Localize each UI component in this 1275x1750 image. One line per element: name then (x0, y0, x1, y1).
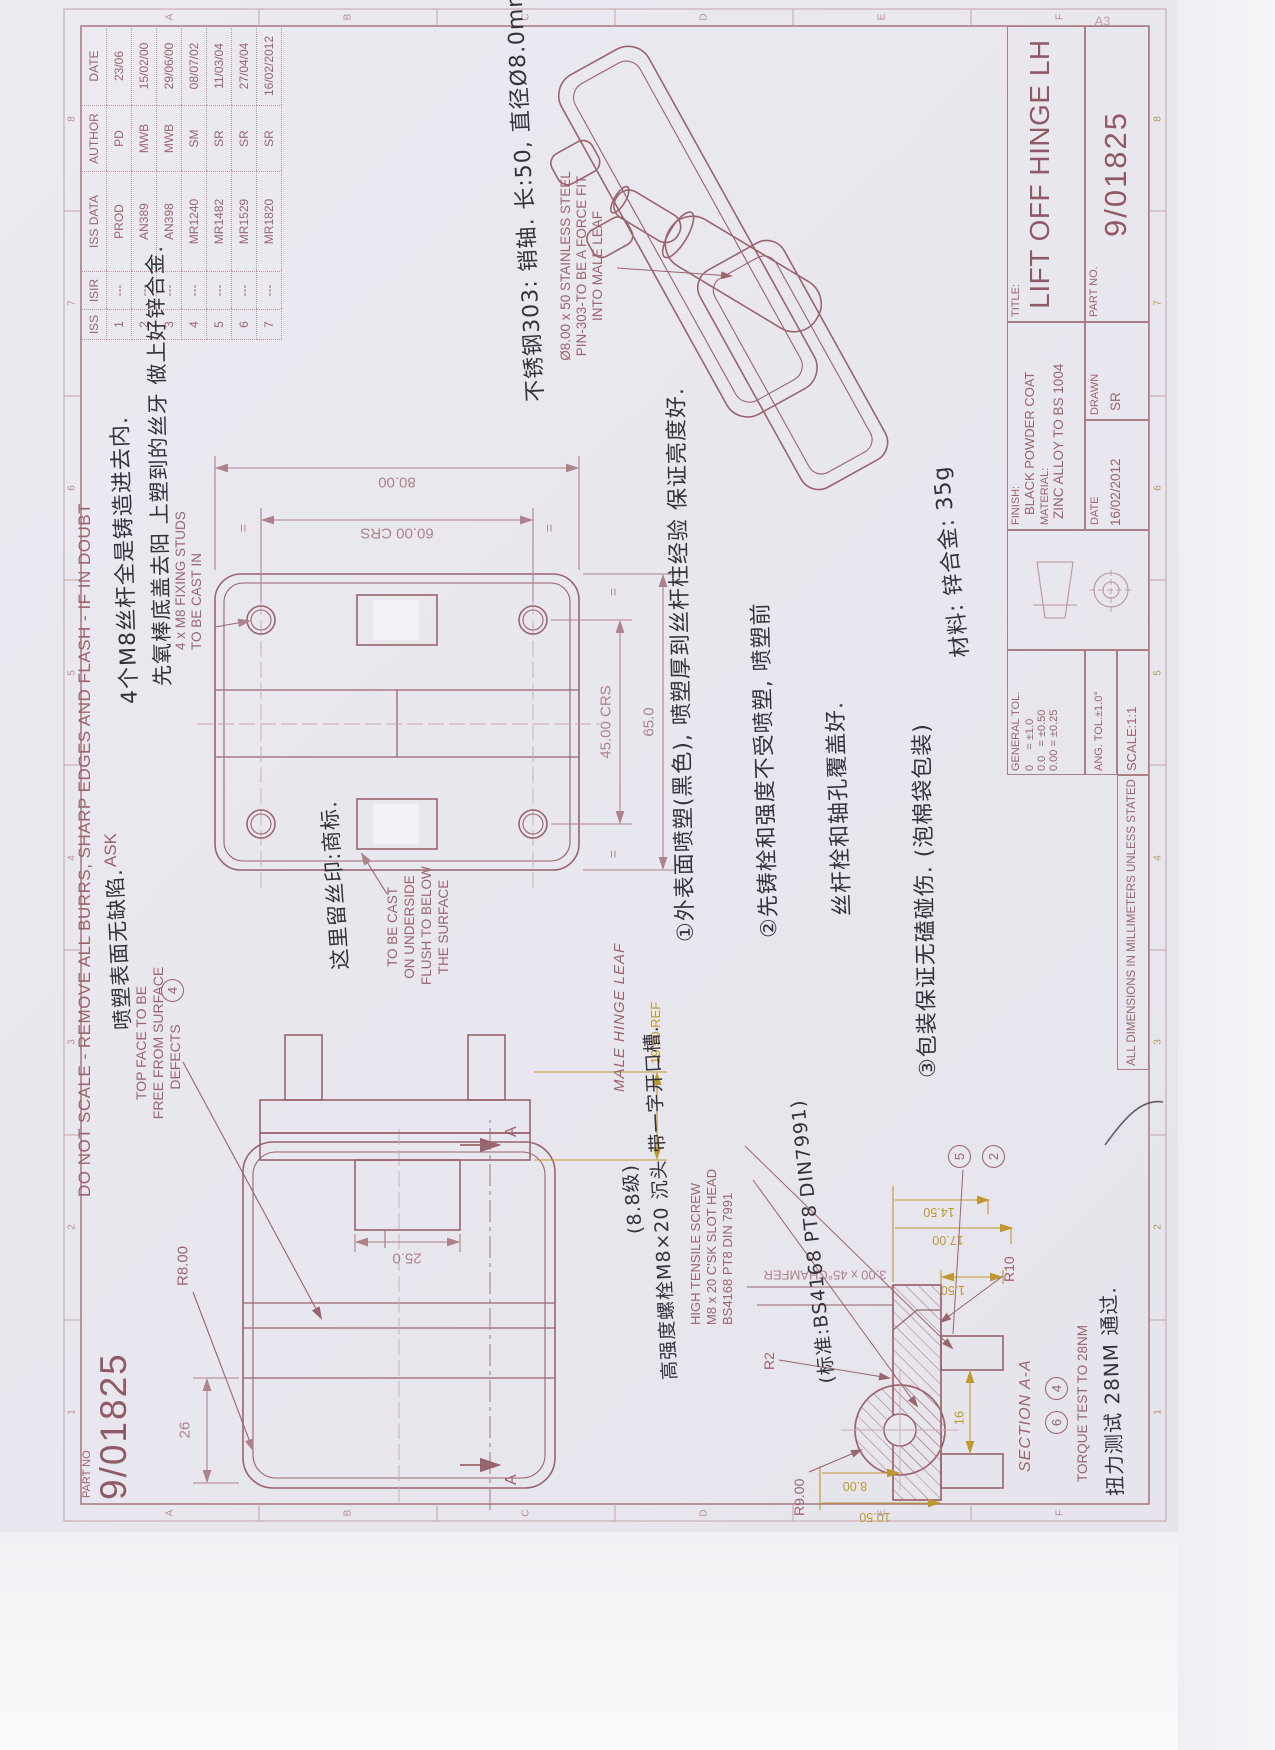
scale-value: SCALE:1:1 (1118, 651, 1145, 774)
zone-number: 2 (1153, 1224, 1164, 1230)
drawn-value: SR (1104, 323, 1127, 419)
top-face-note-line: DEFECTS (167, 982, 183, 1132)
col-iss: ISS (82, 310, 107, 340)
zone-number: 1 (67, 1409, 78, 1415)
zone-number: 5 (1153, 670, 1164, 676)
section-arrow-label-a: A (503, 1474, 521, 1485)
title-cell: TITLE: LIFT OFF HINGE LH (1007, 26, 1085, 322)
top-face-note-line: TOP FACE TO BE (133, 954, 149, 1132)
tol-line: 0 = ±1.0 (1024, 651, 1036, 774)
zone-number: 6 (67, 485, 78, 491)
dim-16: 16 (953, 1411, 968, 1425)
ang-tol-cell: ANG. TOL.±1.0° (1085, 650, 1117, 775)
zone-letter: A (165, 1510, 176, 1517)
title-label: TITLE: (1008, 27, 1024, 321)
balloon-4: 4 (161, 979, 184, 1002)
cast-note-line: FLUSH TO BELOW (419, 869, 435, 985)
dim-r9: R9.00 (791, 1479, 807, 1516)
material-label: MATERIAL: (1037, 323, 1051, 529)
balloon-4b: 4 (1045, 1377, 1068, 1400)
zone-number: 7 (67, 300, 78, 306)
col-author: AUTHOR (82, 106, 107, 172)
scanner-margin-bottom (0, 1532, 1178, 1750)
top-face-note-line: FREE FROM SURFACE (150, 954, 166, 1132)
scanned-drawing-page: PART NO 9/01825 DO NOT SCALE - REMOVE AL… (0, 0, 1275, 1750)
eq-mark: = (541, 524, 557, 532)
zone-number: 2 (67, 1224, 78, 1230)
pin-note-line: INTO MALE LEAF (590, 152, 606, 380)
pin-note-line: PIN-303-TO BE A FORCE FIT (574, 152, 590, 380)
drawn-cell: DRAWN SR (1085, 322, 1149, 420)
zone-letter: E (877, 14, 888, 21)
zone-letter: D (699, 13, 710, 20)
dim-r8: R8.00 (174, 1246, 191, 1286)
dim-45-crs: 45.00 CRS (597, 685, 614, 758)
zone-letter: C (521, 1509, 532, 1516)
scale-cell: SCALE:1:1 (1117, 650, 1149, 775)
screw-note-line: HIGH TENSILE SCREW (689, 1183, 704, 1325)
screw-note-line: BS4168 PT8 DIN 7991 (721, 1193, 736, 1325)
section-label: SECTION A-A (1017, 1359, 1035, 1472)
general-tol-cell: GENERAL TOL. 0 = ±1.0 0.0 = ±0.50 0.00 =… (1007, 650, 1085, 775)
balloon-2: 2 (982, 1145, 1005, 1168)
zone-letter: B (343, 14, 354, 21)
dim-65: 65.0 (640, 707, 657, 736)
revision-table: ISS ISIR ISS DATA AUTHOR DATE 1---PRODPD… (81, 26, 282, 340)
scanner-margin-right (1178, 0, 1275, 1750)
female-front-view (243, 1120, 555, 1510)
zone-number: 5 (67, 670, 78, 676)
dim-17: 17.00 (932, 1233, 963, 1247)
dim-25: 25.0 (392, 1249, 421, 1266)
balloon-6: 6 (1045, 1411, 1068, 1434)
plan-view-dims (215, 456, 675, 894)
stud-note-line1: 4 x M8 FIXING STUDS (173, 511, 189, 650)
sheet-size: A3 (1095, 15, 1111, 30)
dim-60-crs: 60.00 CRS (360, 524, 433, 541)
revision-row: 1---PRODPD23/06 (107, 27, 132, 340)
eq-mark: = (235, 524, 251, 532)
screw-note-line: M8 x 20 C'SK SLOT HEAD (705, 1169, 720, 1325)
part-no-value: 9/01825 (1098, 27, 1134, 321)
zone-number: 1 (1153, 1409, 1164, 1415)
eq-mark: = (605, 588, 621, 596)
zone-letter: B (343, 1510, 354, 1517)
balloon-5: 5 (948, 1145, 971, 1168)
revision-row: 7---MR1820SR16/02/2012 (257, 27, 282, 340)
zone-letter: C (521, 13, 532, 20)
cast-note-line: TO BE CAST (385, 869, 401, 985)
all-dims-cell: ALL DIMENSIONS IN MILLIMETERS UNLESS STA… (1117, 775, 1149, 1070)
male-hinge-leaf-label: MALE HINGE LEAF (611, 943, 628, 1092)
torque-note: TORQUE TEST TO 28NM (1075, 1325, 1091, 1482)
revision-row: 6---MR1529SR27/04/04 (232, 27, 257, 340)
drawing-title: LIFT OFF HINGE LH (1024, 27, 1056, 321)
zone-number: 8 (1153, 116, 1164, 122)
pin-note-line: Ø8.00 x 50 STAINLESS STEEL (558, 152, 574, 380)
ang-tol: ANG. TOL.±1.0° (1086, 651, 1112, 774)
col-issdata: ISS DATA (82, 172, 107, 272)
corner-part-no: 9/01825 (93, 1352, 136, 1500)
date-label: DATE (1086, 421, 1104, 529)
revision-row: 5---MR1482SR11/03/04 (207, 27, 232, 340)
zone-number: 3 (1153, 1039, 1164, 1045)
zone-number: 7 (1153, 300, 1164, 306)
dim-14-50: 14.50 (923, 1205, 954, 1219)
finish-label: FINISH: (1008, 323, 1022, 529)
zone-number: 3 (67, 1039, 78, 1045)
material-value: ZINC ALLOY TO BS 1004 (1051, 323, 1066, 529)
dim-80: 80.00 (378, 473, 416, 490)
dim-r10: R10 (1001, 1256, 1017, 1282)
eq-mark: = (605, 850, 621, 858)
revision-row: 4---MR1240SM08/07/02 (182, 27, 207, 340)
zone-number: 6 (1153, 485, 1164, 491)
dim-1-50: 1.50 (941, 1283, 965, 1297)
zone-letter: E (877, 1510, 888, 1517)
projection-cell (1007, 530, 1149, 650)
tol-line: 0.0 = ±0.50 (1036, 651, 1048, 774)
corner-part-no-label: PART NO (81, 1450, 94, 1498)
all-dims-note: ALL DIMENSIONS IN MILLIMETERS UNLESS STA… (1118, 776, 1138, 1069)
cast-note-line: THE SURFACE (436, 869, 452, 985)
section-arrow-label-a: A (503, 1126, 521, 1137)
dim-r2: R2 (761, 1352, 777, 1370)
dim-8: 8.00 (843, 1479, 867, 1493)
revision-header-row: ISS ISIR ISS DATA AUTHOR DATE (82, 27, 107, 340)
date-cell: DATE 16/02/2012 (1085, 420, 1149, 530)
finish-material-cell: FINISH: BLACK POWDER COAT MATERIAL: ZINC… (1007, 322, 1085, 530)
col-isir: ISIR (82, 272, 107, 310)
general-tol-label: GENERAL TOL. (1008, 651, 1024, 774)
zone-letter: D (699, 1509, 710, 1516)
stud-note-line2: TO BE CAST IN (189, 553, 205, 650)
cast-note-line: ON UNDERSIDE (402, 869, 418, 985)
plan-view (197, 554, 600, 888)
do-not-scale-note: DO NOT SCALE - REMOVE ALL BURRS, SHARP E… (75, 340, 95, 1360)
female-front-dims (183, 1062, 498, 1483)
zone-letter: F (1055, 14, 1066, 20)
drawn-label: DRAWN (1086, 323, 1104, 419)
dim-26: 26 (176, 1422, 193, 1439)
zone-number: 4 (67, 855, 78, 861)
zone-letter: A (165, 14, 176, 21)
tol-line: 0.00 = ±0.25 (1048, 651, 1060, 774)
zone-letter: F (1055, 1510, 1066, 1516)
section-view (841, 1285, 1003, 1500)
zone-number: 4 (1153, 855, 1164, 861)
male-side-dims (355, 1072, 667, 1252)
drawing-sheet-rotated: PART NO 9/01825 DO NOT SCALE - REMOVE AL… (55, 0, 1175, 1530)
finish-value: BLACK POWDER COAT (1022, 323, 1037, 529)
part-no-cell: PART NO. 9/01825 (1085, 26, 1149, 322)
zone-number: 8 (67, 116, 78, 122)
col-date: DATE (82, 27, 107, 106)
pen-mark (1105, 1102, 1163, 1145)
date-value: 16/02/2012 (1104, 421, 1127, 529)
